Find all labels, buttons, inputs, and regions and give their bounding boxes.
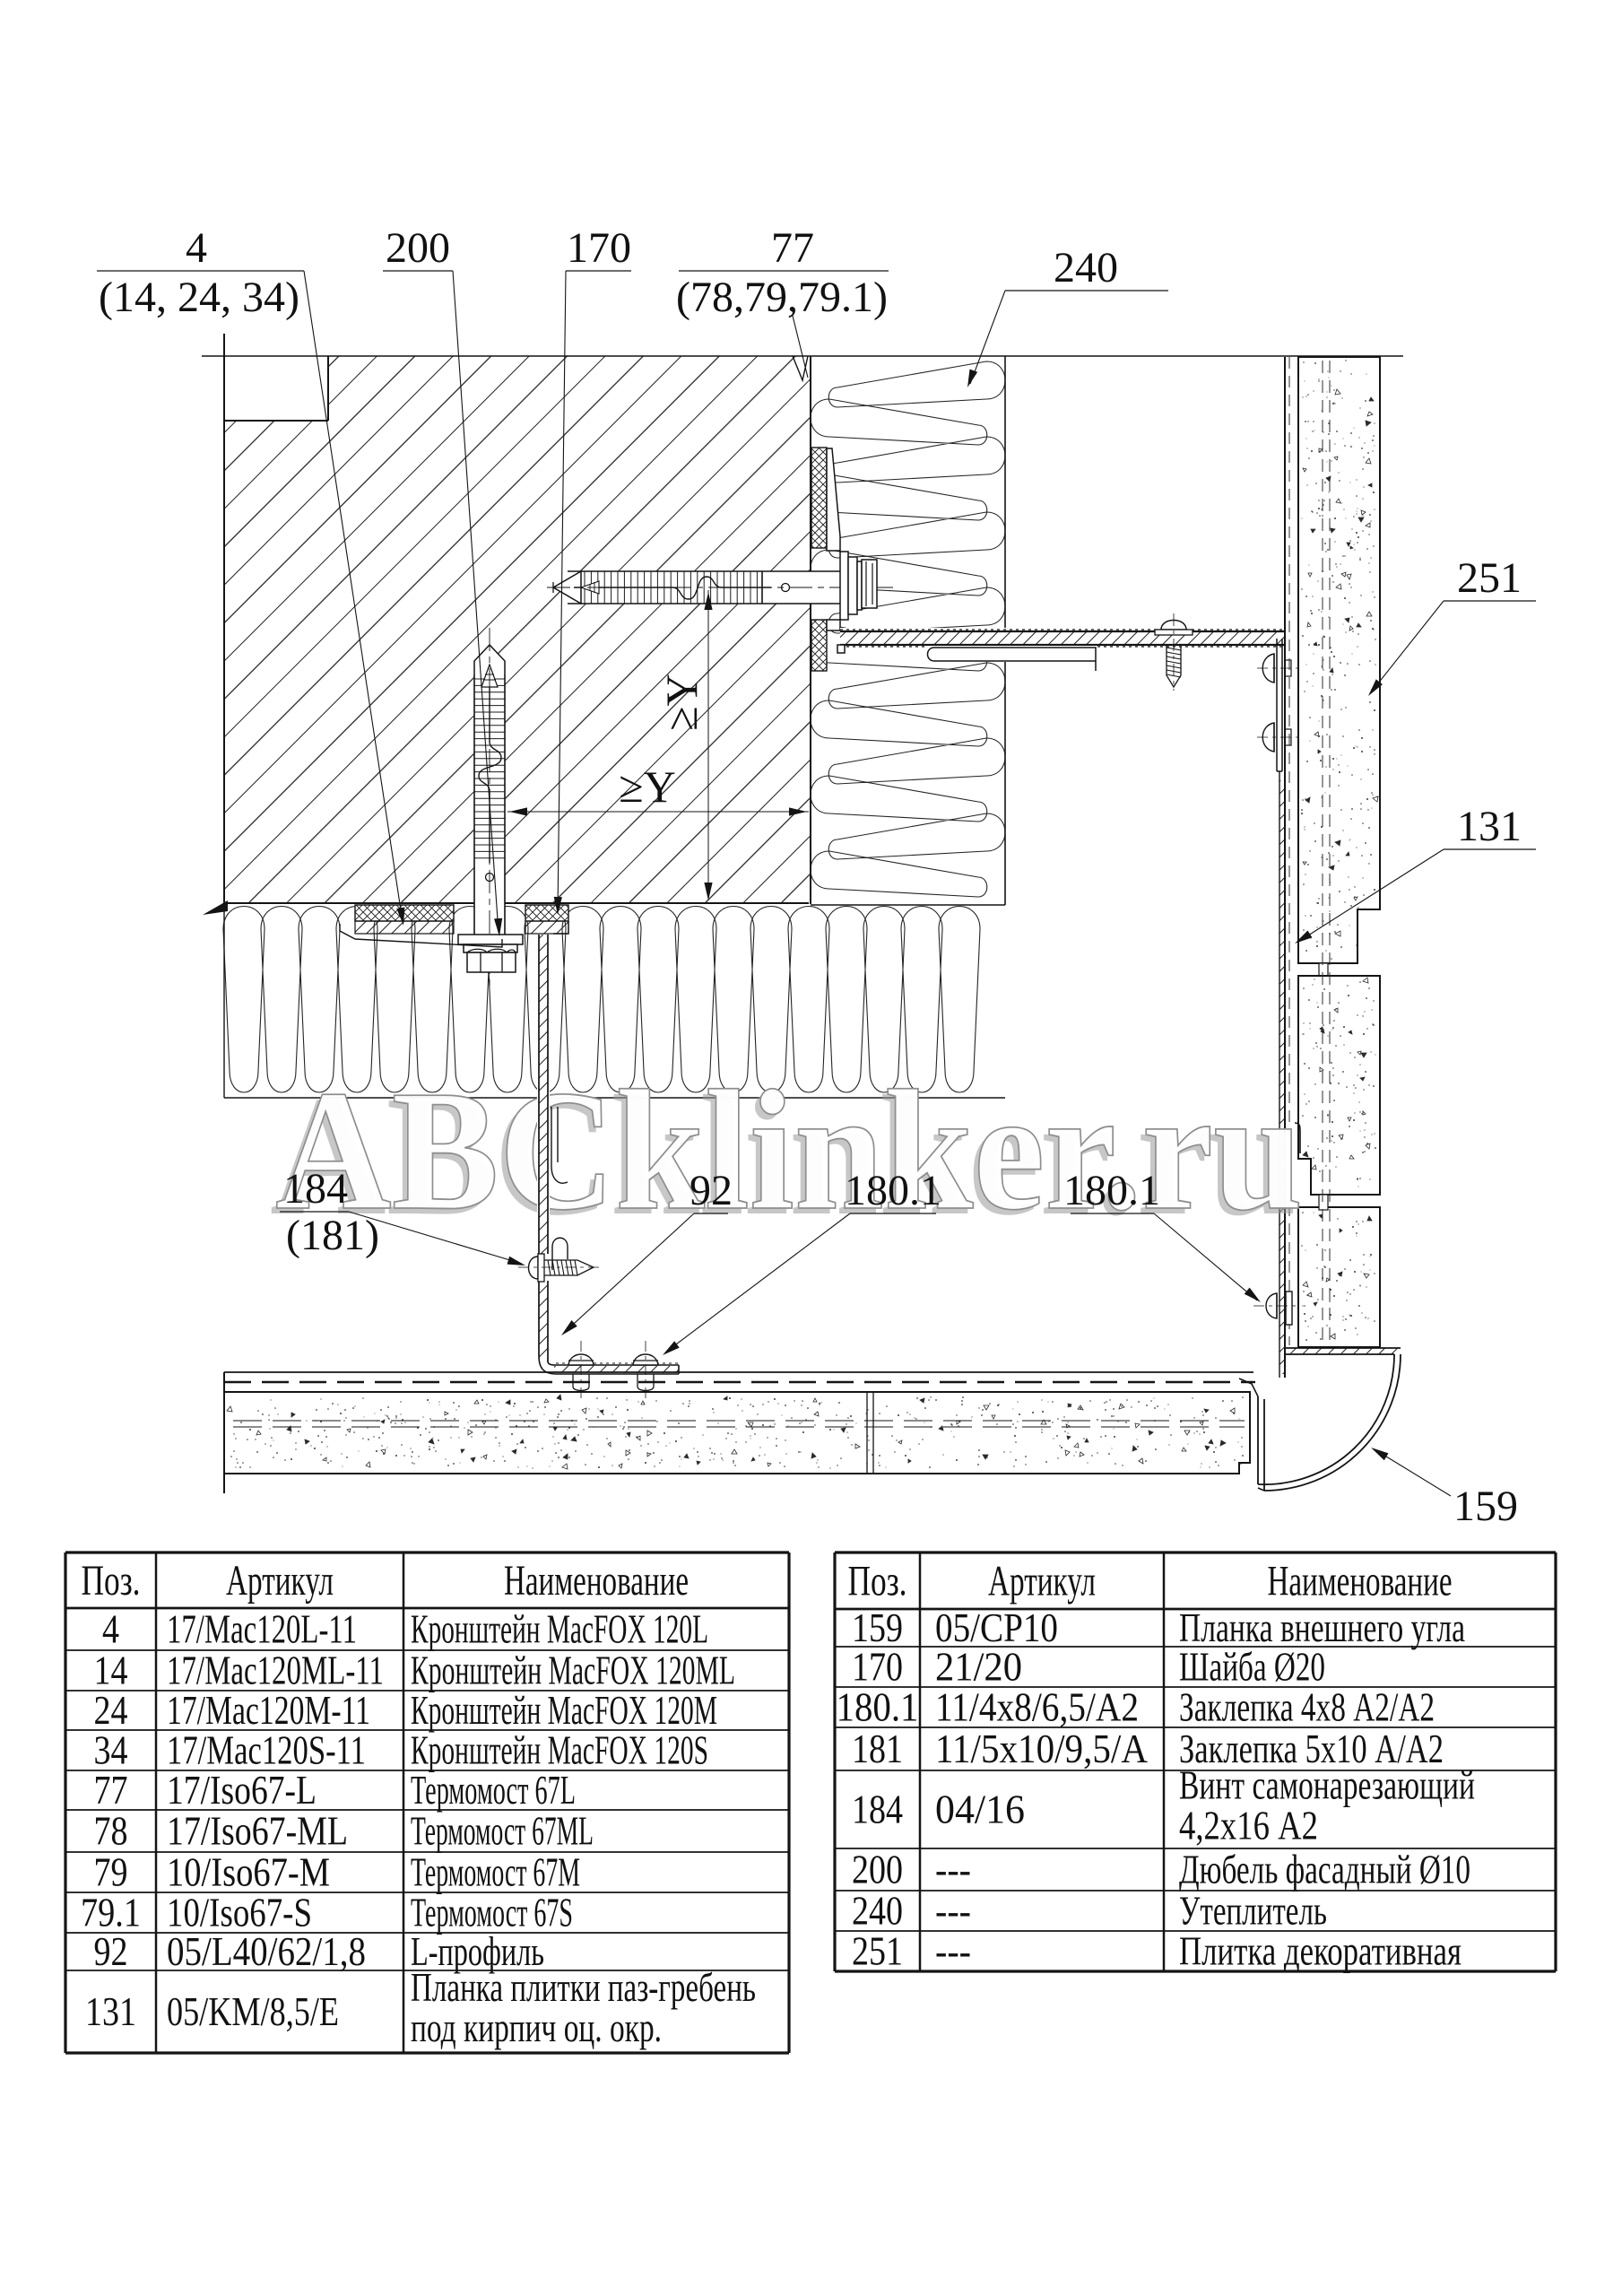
svg-text:17/Iso67-L: 17/Iso67-L: [167, 1767, 317, 1813]
svg-text:34: 34: [94, 1727, 128, 1773]
svg-text:131: 131: [1457, 803, 1522, 850]
svg-text:92: 92: [94, 1928, 128, 1974]
svg-text:11/4x8/6,5/A2: 11/4x8/6,5/A2: [935, 1684, 1139, 1730]
svg-text:05/L40/62/1,8: 05/L40/62/1,8: [167, 1928, 366, 1974]
svg-text:200: 200: [386, 224, 450, 272]
svg-text:251: 251: [1457, 554, 1522, 602]
svg-text:180.1: 180.1: [1063, 1167, 1160, 1214]
svg-text:Планка плитки паз-гребень: Планка плитки паз-гребень: [411, 1964, 756, 2010]
svg-text:Поз.: Поз.: [82, 1557, 141, 1605]
svg-text:04/16: 04/16: [935, 1787, 1025, 1832]
svg-text:170: 170: [567, 224, 631, 272]
svg-text:Утеплитель: Утеплитель: [1179, 1888, 1327, 1934]
svg-text:Наименование: Наименование: [504, 1557, 689, 1605]
svg-text:131: 131: [85, 1988, 136, 2034]
svg-text:≥Y: ≥Y: [656, 674, 707, 731]
svg-text:05/KM/8,5/E: 05/KM/8,5/E: [167, 1988, 339, 2034]
svg-text:180.1: 180.1: [845, 1167, 941, 1214]
svg-text:Плитка декоративная: Плитка декоративная: [1179, 1928, 1462, 1974]
svg-text:184: 184: [283, 1165, 348, 1213]
svg-text:11/5x10/9,5/A: 11/5x10/9,5/A: [935, 1726, 1148, 1771]
svg-text:184: 184: [852, 1787, 903, 1832]
svg-text:Поз.: Поз.: [848, 1558, 907, 1605]
svg-text:200: 200: [852, 1847, 903, 1892]
svg-text:181: 181: [852, 1726, 903, 1771]
svg-text:Шайба Ø20: Шайба Ø20: [1179, 1644, 1325, 1690]
svg-text:17/Mac120S-11: 17/Mac120S-11: [167, 1727, 366, 1773]
svg-text:77: 77: [771, 224, 814, 272]
svg-text:17/Mac120L-11: 17/Mac120L-11: [167, 1606, 357, 1652]
svg-text:Термомост 67ML: Термомост 67ML: [411, 1808, 594, 1854]
svg-text:240: 240: [852, 1888, 903, 1934]
svg-text:под кирпич оц. окр.: под кирпич оц. окр.: [411, 2005, 662, 2050]
svg-text:159: 159: [1453, 1483, 1518, 1530]
svg-text:4,2x16 А2: 4,2x16 А2: [1179, 1803, 1318, 1848]
svg-text:21/20: 21/20: [935, 1644, 1022, 1690]
svg-text:≥Y: ≥Y: [619, 761, 676, 812]
svg-text:170: 170: [852, 1644, 903, 1690]
svg-text:Термомост 67L: Термомост 67L: [411, 1767, 576, 1813]
svg-text:---: ---: [935, 1888, 971, 1934]
svg-text:17/Mac120M-11: 17/Mac120M-11: [167, 1687, 370, 1733]
svg-text:Винт самонарезающий: Винт самонарезающий: [1179, 1762, 1475, 1808]
svg-text:4: 4: [102, 1606, 119, 1652]
svg-text:240: 240: [1054, 244, 1118, 291]
svg-text:17/Iso67-ML: 17/Iso67-ML: [167, 1808, 348, 1854]
svg-text:Артикул: Артикул: [226, 1557, 334, 1605]
svg-text:92: 92: [690, 1167, 733, 1214]
svg-text:251: 251: [852, 1928, 903, 1974]
svg-text:Кронштейн MacFOX 120M: Кронштейн MacFOX 120M: [411, 1687, 717, 1733]
svg-text:(181): (181): [286, 1212, 379, 1259]
svg-text:Заклепка 4x8 А2/А2: Заклепка 4x8 А2/А2: [1179, 1684, 1435, 1730]
svg-text:14: 14: [94, 1648, 128, 1693]
svg-text:Дюбель фасадный Ø10: Дюбель фасадный Ø10: [1179, 1847, 1470, 1892]
svg-text:4: 4: [186, 224, 207, 272]
svg-text:Кронштейн MacFOX 120ML: Кронштейн MacFOX 120ML: [411, 1648, 735, 1693]
svg-text:Наименование: Наименование: [1268, 1558, 1453, 1605]
svg-text:---: ---: [935, 1847, 971, 1892]
svg-text:17/Mac120ML-11: 17/Mac120ML-11: [167, 1648, 384, 1693]
svg-text:79: 79: [94, 1849, 128, 1895]
svg-text:Артикул: Артикул: [988, 1558, 1096, 1605]
svg-text:77: 77: [94, 1767, 128, 1813]
svg-text:ABCklinker.ru: ABCklinker.ru: [275, 1055, 1303, 1246]
svg-text:Кронштейн MacFOX 120L: Кронштейн MacFOX 120L: [411, 1606, 708, 1652]
svg-text:Термомост 67M: Термомост 67M: [411, 1849, 580, 1895]
svg-text:---: ---: [935, 1928, 971, 1974]
svg-text:(14, 24, 34): (14, 24, 34): [99, 274, 299, 321]
svg-text:(78,79,79.1): (78,79,79.1): [676, 274, 888, 321]
svg-text:24: 24: [94, 1687, 128, 1733]
svg-text:10/Iso67-M: 10/Iso67-M: [167, 1849, 330, 1895]
svg-text:Кронштейн MacFOX 120S: Кронштейн MacFOX 120S: [411, 1727, 708, 1773]
svg-text:180.1: 180.1: [837, 1684, 919, 1730]
svg-text:78: 78: [94, 1808, 128, 1854]
